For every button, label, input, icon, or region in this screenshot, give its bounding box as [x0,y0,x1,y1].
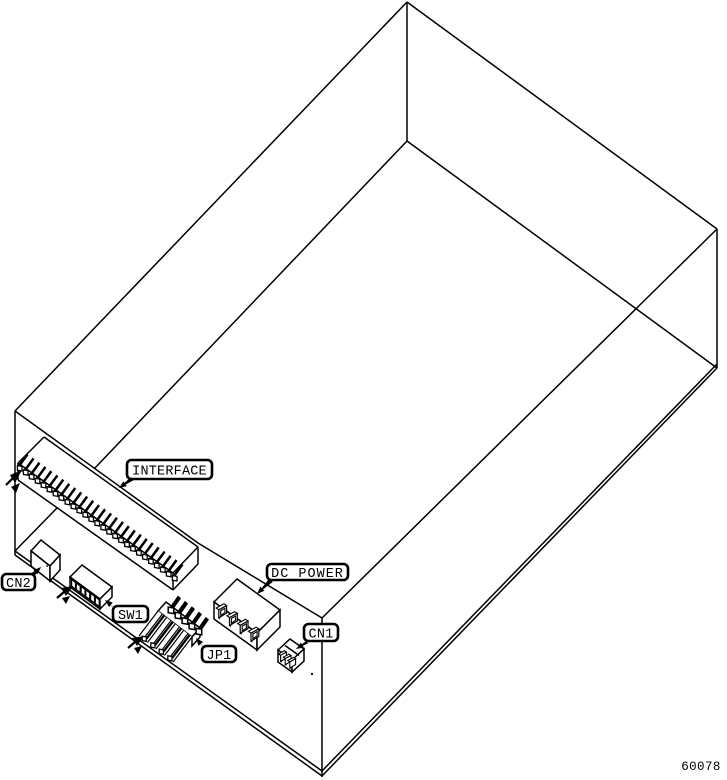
svg-text:CN2: CN2 [6,577,31,592]
svg-text:60078: 60078 [681,760,721,774]
svg-text:DC POWER: DC POWER [271,567,344,582]
svg-text:INTERFACE: INTERFACE [132,464,207,479]
svg-text:SW1: SW1 [118,609,143,624]
svg-text:JP1: JP1 [207,649,232,664]
svg-text:CN1: CN1 [309,627,334,642]
